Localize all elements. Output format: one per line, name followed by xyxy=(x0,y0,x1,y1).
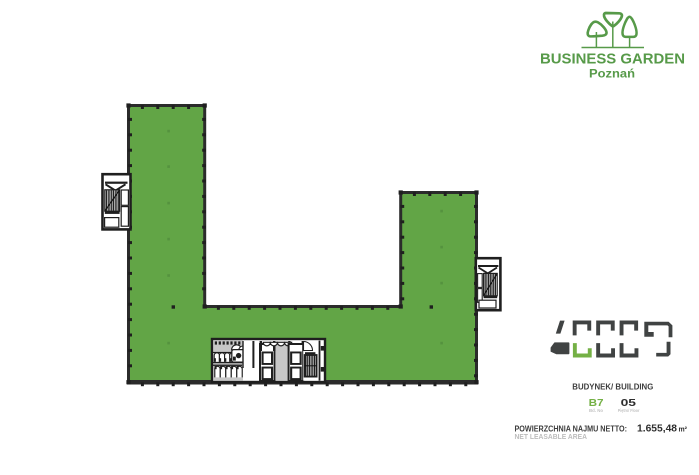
svg-text:POWIERZCHNIA NAJMU NETTO:: POWIERZCHNIA NAJMU NETTO: xyxy=(515,423,628,433)
svg-text:Piętro/ Floor: Piętro/ Floor xyxy=(618,408,640,413)
svg-text:NET LEASABLE AREA: NET LEASABLE AREA xyxy=(515,434,588,441)
svg-text:BUSINESS GARDEN: BUSINESS GARDEN xyxy=(540,52,685,68)
svg-text:Poznań: Poznań xyxy=(589,67,635,81)
svg-text:1.655,48: 1.655,48 xyxy=(637,424,677,435)
svg-text:BUDYNEK/ BUILDING: BUDYNEK/ BUILDING xyxy=(572,382,653,392)
svg-text:Bd. No: Bd. No xyxy=(589,408,603,413)
svg-text:m²: m² xyxy=(679,425,688,434)
